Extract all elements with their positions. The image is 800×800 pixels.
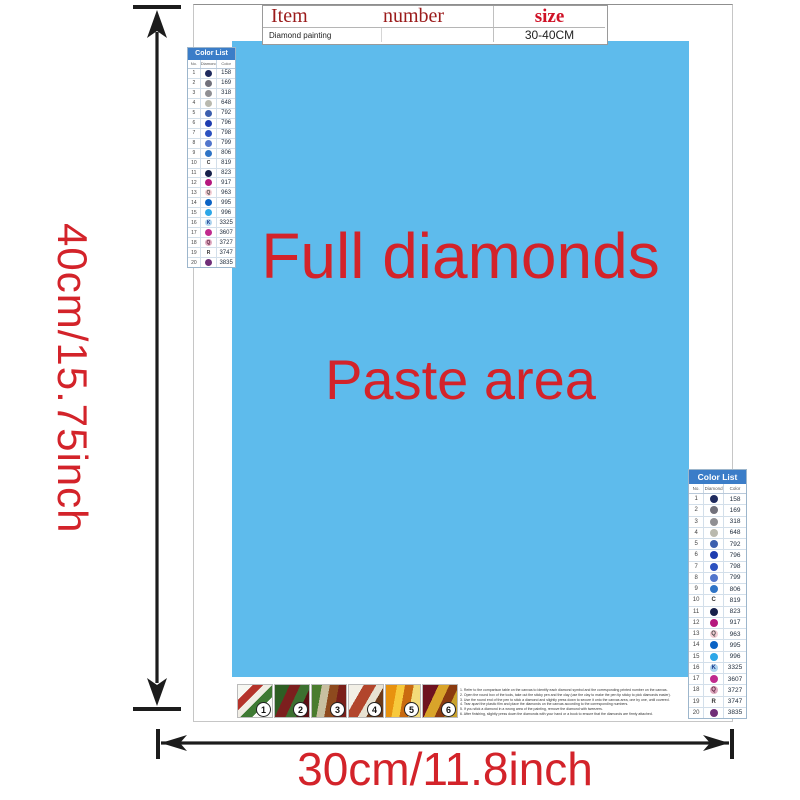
item-value-cell: Diamond painting [263, 28, 381, 42]
color-list-row: 13 Q 963 [689, 629, 746, 640]
dmc-color-code: 917 [217, 178, 235, 187]
dmc-color-code: 917 [724, 618, 746, 628]
row-number: 11 [689, 607, 704, 617]
dmc-color-code: 648 [217, 99, 235, 108]
col-no-label: No. [188, 60, 201, 68]
row-number: 18 [188, 238, 201, 247]
dmc-color-code: 823 [724, 607, 746, 617]
product-infographic: 40cm/15.75inch Item number size Diamond … [0, 0, 800, 800]
color-list-row: 3 318 [689, 517, 746, 528]
color-list-row: 4 648 [188, 99, 235, 109]
diamond-symbol-icon [205, 179, 212, 186]
step-number-badge: 3 [330, 702, 345, 717]
diamond-symbol-icon [710, 540, 718, 548]
diamond-symbol-icon [710, 506, 718, 514]
col-color-label: Color [724, 484, 746, 493]
diamond-symbol-icon: Q [205, 239, 212, 246]
diamond-symbol-icon [205, 259, 212, 266]
diamond-symbol-icon: C [710, 596, 718, 604]
col-diamond-label: Diamond [704, 484, 724, 493]
diamond-symbol-icon [205, 170, 212, 177]
dmc-color-code: 799 [217, 139, 235, 148]
dmc-color-code: 318 [217, 89, 235, 98]
size-value-cell: 30-40CM [493, 28, 605, 42]
color-list-row: 11 823 [188, 169, 235, 179]
color-list-row: 12 917 [188, 178, 235, 188]
diamond-symbol-icon [205, 199, 212, 206]
row-number: 16 [188, 218, 201, 227]
color-list-row: 1 158 [188, 69, 235, 79]
diamond-symbol-icon [205, 100, 212, 107]
row-number: 19 [188, 248, 201, 257]
diamond-symbol-icon [710, 709, 718, 717]
row-number: 1 [689, 494, 704, 504]
size-header-cell: size [493, 6, 605, 28]
color-list-row: 20 3835 [689, 708, 746, 718]
row-number: 3 [188, 89, 201, 98]
diamond-symbol-icon [205, 110, 212, 117]
color-list-row: 10 C 819 [188, 159, 235, 169]
diamond-symbol-icon: Q [710, 686, 718, 694]
instruction-line: 6. After finishing, slightly press down … [460, 712, 723, 717]
diamond-symbol-icon [205, 140, 212, 147]
row-number: 10 [689, 595, 704, 605]
color-list-right: Color List No. Diamond Color 1 158 2 [688, 469, 747, 719]
dmc-color-code: 792 [217, 109, 235, 118]
row-number: 5 [689, 539, 704, 549]
diamond-symbol-icon [710, 675, 718, 683]
row-number: 15 [689, 652, 704, 662]
dmc-color-code: 996 [724, 652, 746, 662]
step-photos: 1 2 3 4 5 6 [237, 684, 458, 718]
row-number: 20 [689, 708, 704, 718]
diamond-symbol-icon: Q [710, 630, 718, 638]
diamond-symbol-icon: R [710, 698, 718, 706]
row-number: 12 [689, 618, 704, 628]
diamond-symbol-icon [205, 150, 212, 157]
diamond-symbol-icon [710, 551, 718, 559]
dmc-color-code: 3607 [724, 674, 746, 684]
row-number: 7 [188, 129, 201, 138]
dmc-color-code: 3325 [217, 218, 235, 227]
row-number: 9 [689, 584, 704, 594]
row-number: 9 [188, 149, 201, 158]
color-list-row: 17 3607 [689, 674, 746, 685]
dmc-color-code: 995 [217, 198, 235, 207]
color-list-row: 6 796 [188, 119, 235, 129]
paste-area-subtitle: Paste area [232, 347, 689, 412]
row-number: 4 [188, 99, 201, 108]
col-diamond-label: Diamond [201, 60, 218, 68]
col-no-label: No. [689, 484, 704, 493]
dmc-color-code: 318 [724, 517, 746, 527]
dmc-color-code: 996 [217, 208, 235, 217]
row-number: 12 [188, 178, 201, 187]
color-list-row: 19 R 3747 [188, 248, 235, 258]
color-list-columns: No. Diamond Color [689, 484, 746, 494]
row-number: 13 [188, 188, 201, 197]
dmc-color-code: 798 [724, 562, 746, 572]
color-list-row: 4 648 [689, 528, 746, 539]
row-number: 15 [188, 208, 201, 217]
dmc-color-code: 158 [217, 69, 235, 78]
diamond-symbol-icon [205, 80, 212, 87]
diamond-symbol-icon [205, 120, 212, 127]
row-number: 18 [689, 685, 704, 695]
diamond-symbol-icon [710, 518, 718, 526]
row-number: 20 [188, 258, 201, 267]
color-list-row: 20 3835 [188, 258, 235, 267]
color-list-left: Color List No. Diamond Color 1 158 2 [187, 47, 236, 268]
color-list-row: 18 Q 3727 [188, 238, 235, 248]
arrow-top-cap [133, 5, 181, 9]
dmc-color-code: 963 [217, 188, 235, 197]
diamond-symbol-icon [205, 70, 212, 77]
dmc-color-code: 3325 [724, 663, 746, 673]
dmc-color-code: 798 [217, 129, 235, 138]
row-number: 3 [689, 517, 704, 527]
item-header-cell: Item [263, 6, 381, 28]
step-number-badge: 6 [441, 702, 456, 717]
dmc-color-code: 648 [724, 528, 746, 538]
step-photo: 3 [311, 684, 347, 718]
color-list-row: 10 C 819 [689, 595, 746, 606]
number-value-cell [381, 28, 493, 42]
row-number: 8 [689, 573, 704, 583]
diamond-symbol-icon [710, 574, 718, 582]
diamond-symbol-icon [710, 585, 718, 593]
color-list-row: 15 996 [188, 208, 235, 218]
dmc-color-code: 3727 [724, 685, 746, 695]
dmc-color-code: 3747 [217, 248, 235, 257]
dmc-color-code: 792 [724, 539, 746, 549]
row-number: 2 [188, 79, 201, 88]
diamond-symbol-icon [710, 641, 718, 649]
diamond-symbol-icon [710, 619, 718, 627]
step-number-badge: 2 [293, 702, 308, 717]
diamond-symbol-icon [710, 529, 718, 537]
row-number: 14 [188, 198, 201, 207]
instructions-text: 1. Refer to the comparison table on the … [460, 688, 723, 717]
color-list-row: 9 806 [188, 149, 235, 159]
dmc-color-code: 3835 [217, 258, 235, 267]
step-number-badge: 1 [256, 702, 271, 717]
step-photo: 4 [348, 684, 384, 718]
row-number: 5 [188, 109, 201, 118]
color-list-row: 15 996 [689, 652, 746, 663]
color-list-row: 5 792 [689, 539, 746, 550]
color-list-row: 11 823 [689, 607, 746, 618]
row-number: 4 [689, 528, 704, 538]
dmc-color-code: 796 [724, 550, 746, 560]
color-list-row: 7 798 [188, 129, 235, 139]
diamond-symbol-icon: Q [205, 189, 212, 196]
step-photo: 6 [422, 684, 458, 718]
arrow-bottom-cap [133, 707, 181, 711]
number-header-cell: number [381, 6, 493, 28]
row-number: 11 [188, 169, 201, 178]
row-number: 16 [689, 663, 704, 673]
color-list-rows: 1 158 2 169 3 318 [689, 494, 746, 718]
color-list-row: 13 Q 963 [188, 188, 235, 198]
step-number-badge: 5 [404, 702, 419, 717]
diamond-symbol-icon [710, 608, 718, 616]
dmc-color-code: 819 [724, 595, 746, 605]
color-list-row: 16 K 3325 [188, 218, 235, 228]
color-list-title: Color List [188, 48, 235, 60]
height-dimension-label: 40cm/15.75inch [34, 188, 110, 568]
col-color-label: Color [217, 60, 235, 68]
diamond-symbol-icon [710, 495, 718, 503]
dmc-color-code: 3727 [217, 238, 235, 247]
canvas-sheet: Item number size Diamond painting 30-40C… [193, 4, 733, 722]
dmc-color-code: 3835 [724, 708, 746, 718]
row-number: 6 [689, 550, 704, 560]
step-photo: 5 [385, 684, 421, 718]
row-number: 1 [188, 69, 201, 78]
color-list-row: 9 806 [689, 584, 746, 595]
color-list-row: 3 318 [188, 89, 235, 99]
diamond-symbol-icon [710, 563, 718, 571]
diamond-symbol-icon [205, 229, 212, 236]
color-list-rows: 1 158 2 169 3 318 [188, 69, 235, 267]
step-number-badge: 4 [367, 702, 382, 717]
arrow-shaft [155, 32, 158, 683]
dmc-color-code: 169 [724, 505, 746, 515]
diamond-symbol-icon: K [710, 664, 718, 672]
paste-area-title: Full diamonds [232, 219, 689, 293]
dmc-color-code: 796 [217, 119, 235, 128]
row-number: 2 [689, 505, 704, 515]
row-number: 17 [689, 674, 704, 684]
step-photo: 2 [274, 684, 310, 718]
diamond-symbol-icon [205, 209, 212, 216]
dmc-color-code: 3607 [217, 228, 235, 237]
color-list-row: 2 169 [689, 505, 746, 516]
dmc-color-code: 823 [217, 169, 235, 178]
color-list-row: 6 796 [689, 550, 746, 561]
diamond-symbol-icon: K [205, 219, 212, 226]
row-number: 7 [689, 562, 704, 572]
dmc-color-code: 806 [724, 584, 746, 594]
diamond-symbol-icon [205, 130, 212, 137]
item-info-table: Item number size Diamond painting 30-40C… [262, 5, 608, 45]
color-list-row: 17 3607 [188, 228, 235, 238]
diamond-symbol-icon [710, 653, 718, 661]
row-number: 8 [188, 139, 201, 148]
row-number: 10 [188, 159, 201, 168]
dmc-color-code: 169 [217, 79, 235, 88]
dmc-color-code: 158 [724, 494, 746, 504]
diamond-symbol-icon: C [205, 160, 212, 167]
dmc-color-code: 806 [217, 149, 235, 158]
dmc-color-code: 963 [724, 629, 746, 639]
color-list-row: 14 995 [689, 640, 746, 651]
step-photo: 1 [237, 684, 273, 718]
color-list-row: 18 Q 3727 [689, 685, 746, 696]
color-list-title: Color List [689, 470, 746, 484]
row-number: 13 [689, 629, 704, 639]
diamond-symbol-icon [205, 90, 212, 97]
color-list-row: 16 K 3325 [689, 663, 746, 674]
row-number: 19 [689, 697, 704, 707]
row-number: 17 [188, 228, 201, 237]
color-list-row: 8 799 [188, 139, 235, 149]
color-list-row: 19 R 3747 [689, 697, 746, 708]
color-list-row: 8 799 [689, 573, 746, 584]
width-dimension-label: 30cm/11.8inch [150, 742, 740, 796]
color-list-row: 2 169 [188, 79, 235, 89]
color-list-row: 14 995 [188, 198, 235, 208]
dmc-color-code: 799 [724, 573, 746, 583]
color-list-columns: No. Diamond Color [188, 60, 235, 69]
row-number: 14 [689, 640, 704, 650]
height-dimension-arrow [129, 2, 185, 718]
color-list-row: 12 917 [689, 618, 746, 629]
row-number: 6 [188, 119, 201, 128]
color-list-row: 5 792 [188, 109, 235, 119]
dmc-color-code: 819 [217, 159, 235, 168]
diamond-symbol-icon: R [205, 249, 212, 256]
color-list-row: 1 158 [689, 494, 746, 505]
dmc-color-code: 3747 [724, 697, 746, 707]
paste-area: Full diamonds Paste area [232, 41, 689, 677]
dmc-color-code: 995 [724, 640, 746, 650]
color-list-row: 7 798 [689, 562, 746, 573]
